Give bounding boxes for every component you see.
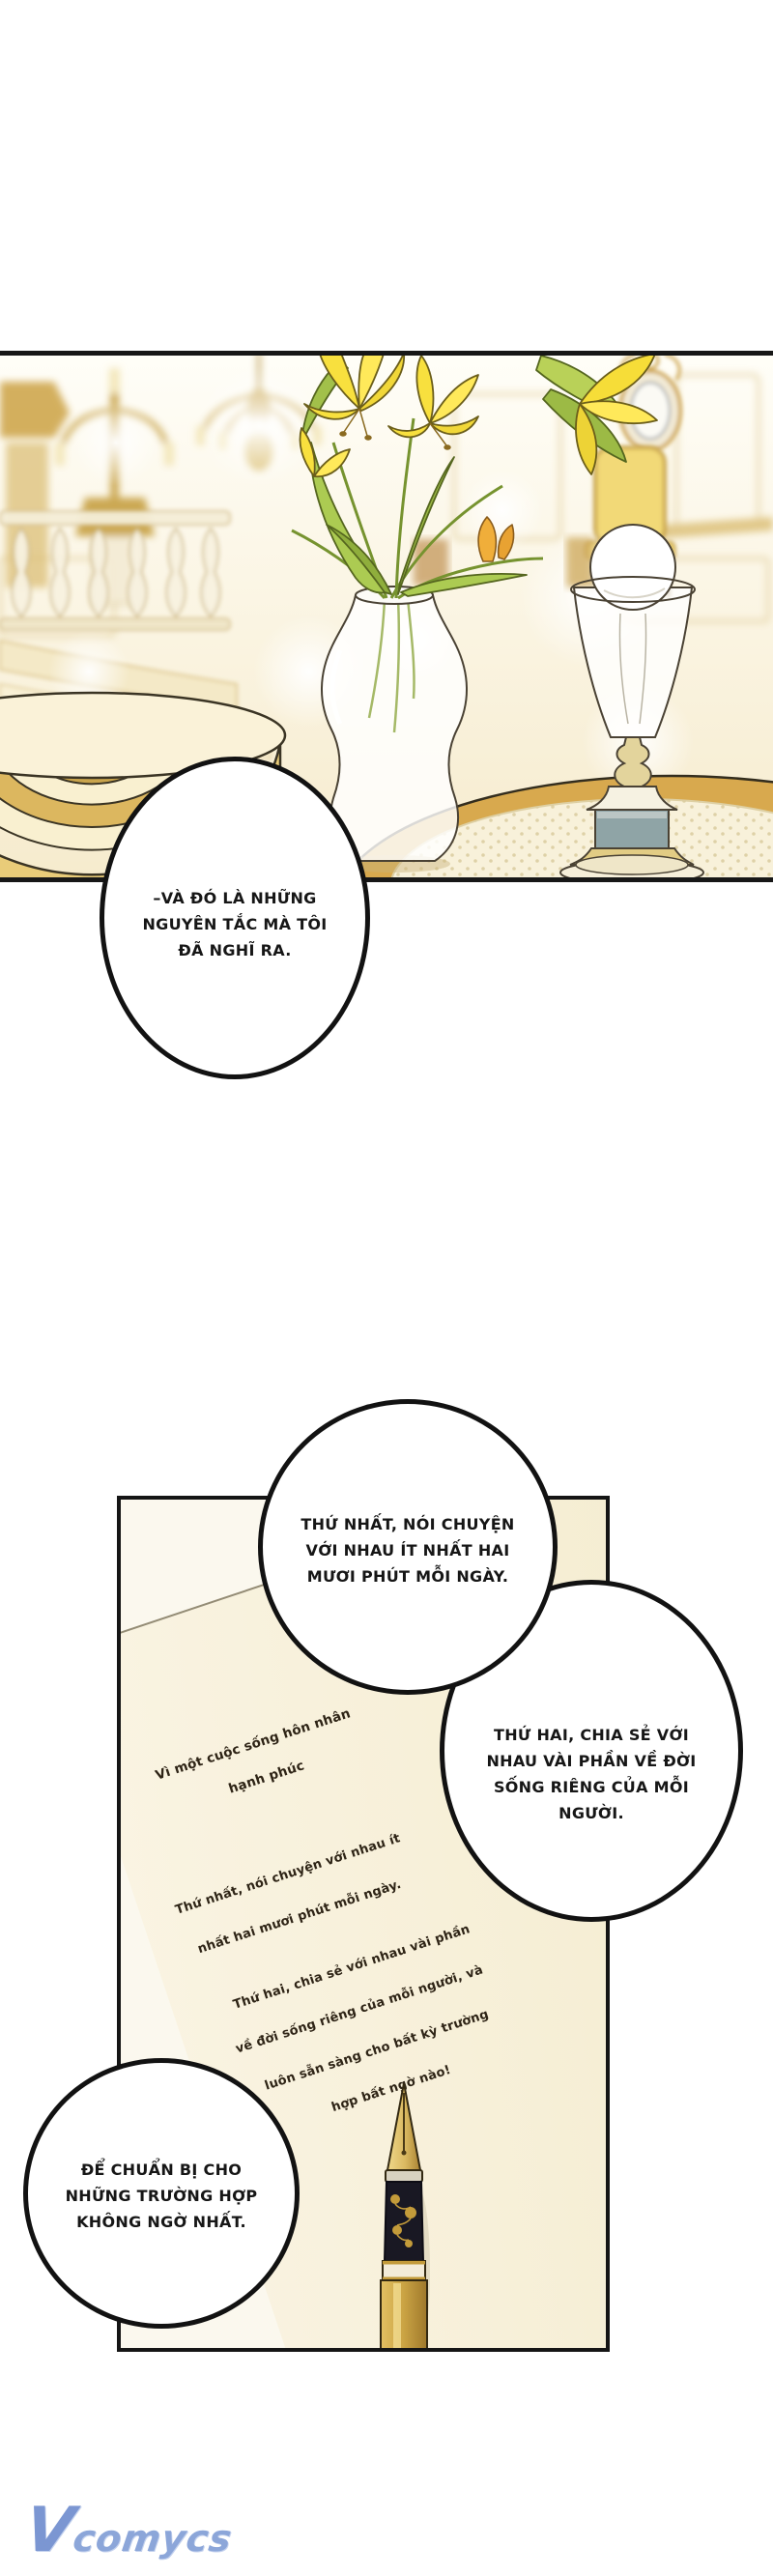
bubble-text-line: NHAU VÀI PHẦN VỀ ĐỜI	[486, 1748, 696, 1774]
comic-page: Vì một cuộc sống hôn nhân hạnh phúc Thứ …	[0, 0, 773, 2576]
bubble-text-line: SỐNG RIÊNG CỦA MỖI	[494, 1774, 689, 1800]
pen-barrel	[381, 2280, 427, 2352]
translator-watermark: Vcomycs	[25, 2497, 276, 2574]
pen-grip	[385, 2182, 423, 2261]
speech-bubble-rules: –VÀ ĐÓ LÀ NHỮNG NGUYÊN TẮC MÀ TÔI ĐÃ NGH…	[100, 757, 370, 1079]
panel1-illustration	[0, 351, 773, 882]
watermark-logo-text: Vcomycs	[20, 2497, 282, 2572]
bubble-text-line: ĐỂ CHUẨN BỊ CHO	[81, 2157, 242, 2183]
bubble-text-line: THỨ NHẤT, NÓI CHUYỆN	[301, 1511, 514, 1537]
bubble-text-line: THỨ HAI, CHIA SẺ VỚI	[494, 1722, 689, 1748]
bubble-text-line: NHỮNG TRƯỜNG HỢP	[66, 2183, 258, 2209]
bubble-text-line: NGƯỜI.	[558, 1800, 624, 1826]
speech-bubble-first-rule: THỨ NHẤT, NÓI CHUYỆN VỚI NHAU ÍT NHẤT HA…	[258, 1399, 558, 1695]
bubble-text-line: ĐÃ NGHĨ RA.	[178, 937, 291, 963]
bubble-text-line: NGUYÊN TẮC MÀ TÔI	[142, 911, 327, 937]
bubble-text-line: KHÔNG NGỜ NHẤT.	[76, 2209, 246, 2235]
bubble-text-line: –VÀ ĐÓ LÀ NHỮNG	[153, 885, 316, 911]
bubble-text-line: MƯƠI PHÚT MỖI NGÀY.	[307, 1563, 509, 1589]
bubble-text-line: VỚI NHAU ÍT NHẤT HAI	[306, 1537, 510, 1563]
panel1-top-border	[0, 351, 773, 356]
speech-bubble-prepare: ĐỂ CHUẨN BỊ CHO NHỮNG TRƯỜNG HỢP KHÔNG N…	[23, 2058, 300, 2329]
fountain-pen	[365, 2077, 444, 2352]
